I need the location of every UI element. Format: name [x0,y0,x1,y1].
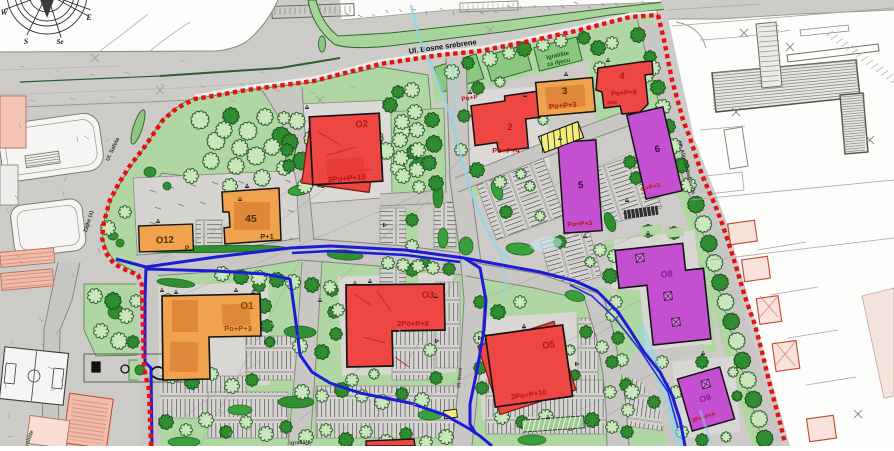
svg-text:W: W [0,8,8,17]
svg-text:O12: O12 [156,235,174,247]
svg-text:O2: O2 [355,118,369,130]
svg-text:Po+P+3: Po+P+3 [224,324,252,333]
svg-text:2Po+P+8: 2Po+P+8 [397,319,429,328]
svg-text:O8: O8 [660,268,673,279]
svg-text:45: 45 [245,213,257,225]
svg-text:O5: O5 [542,339,557,352]
svg-text:2008: 2008 [607,100,618,106]
svg-text:Se: Se [57,38,64,46]
svg-text:2: 2 [507,122,512,133]
svg-text:O3: O3 [422,290,435,301]
svg-text:igralište: igralište [289,439,311,446]
svg-text:O1: O1 [240,301,254,312]
svg-text:3: 3 [562,86,568,97]
svg-text:S: S [24,37,29,46]
svg-text:P: P [185,245,190,252]
svg-text:Po+P+4: Po+P+4 [492,146,520,155]
svg-text:4: 4 [619,71,625,82]
svg-text:P+1: P+1 [260,232,274,241]
svg-text:E: E [85,13,91,22]
